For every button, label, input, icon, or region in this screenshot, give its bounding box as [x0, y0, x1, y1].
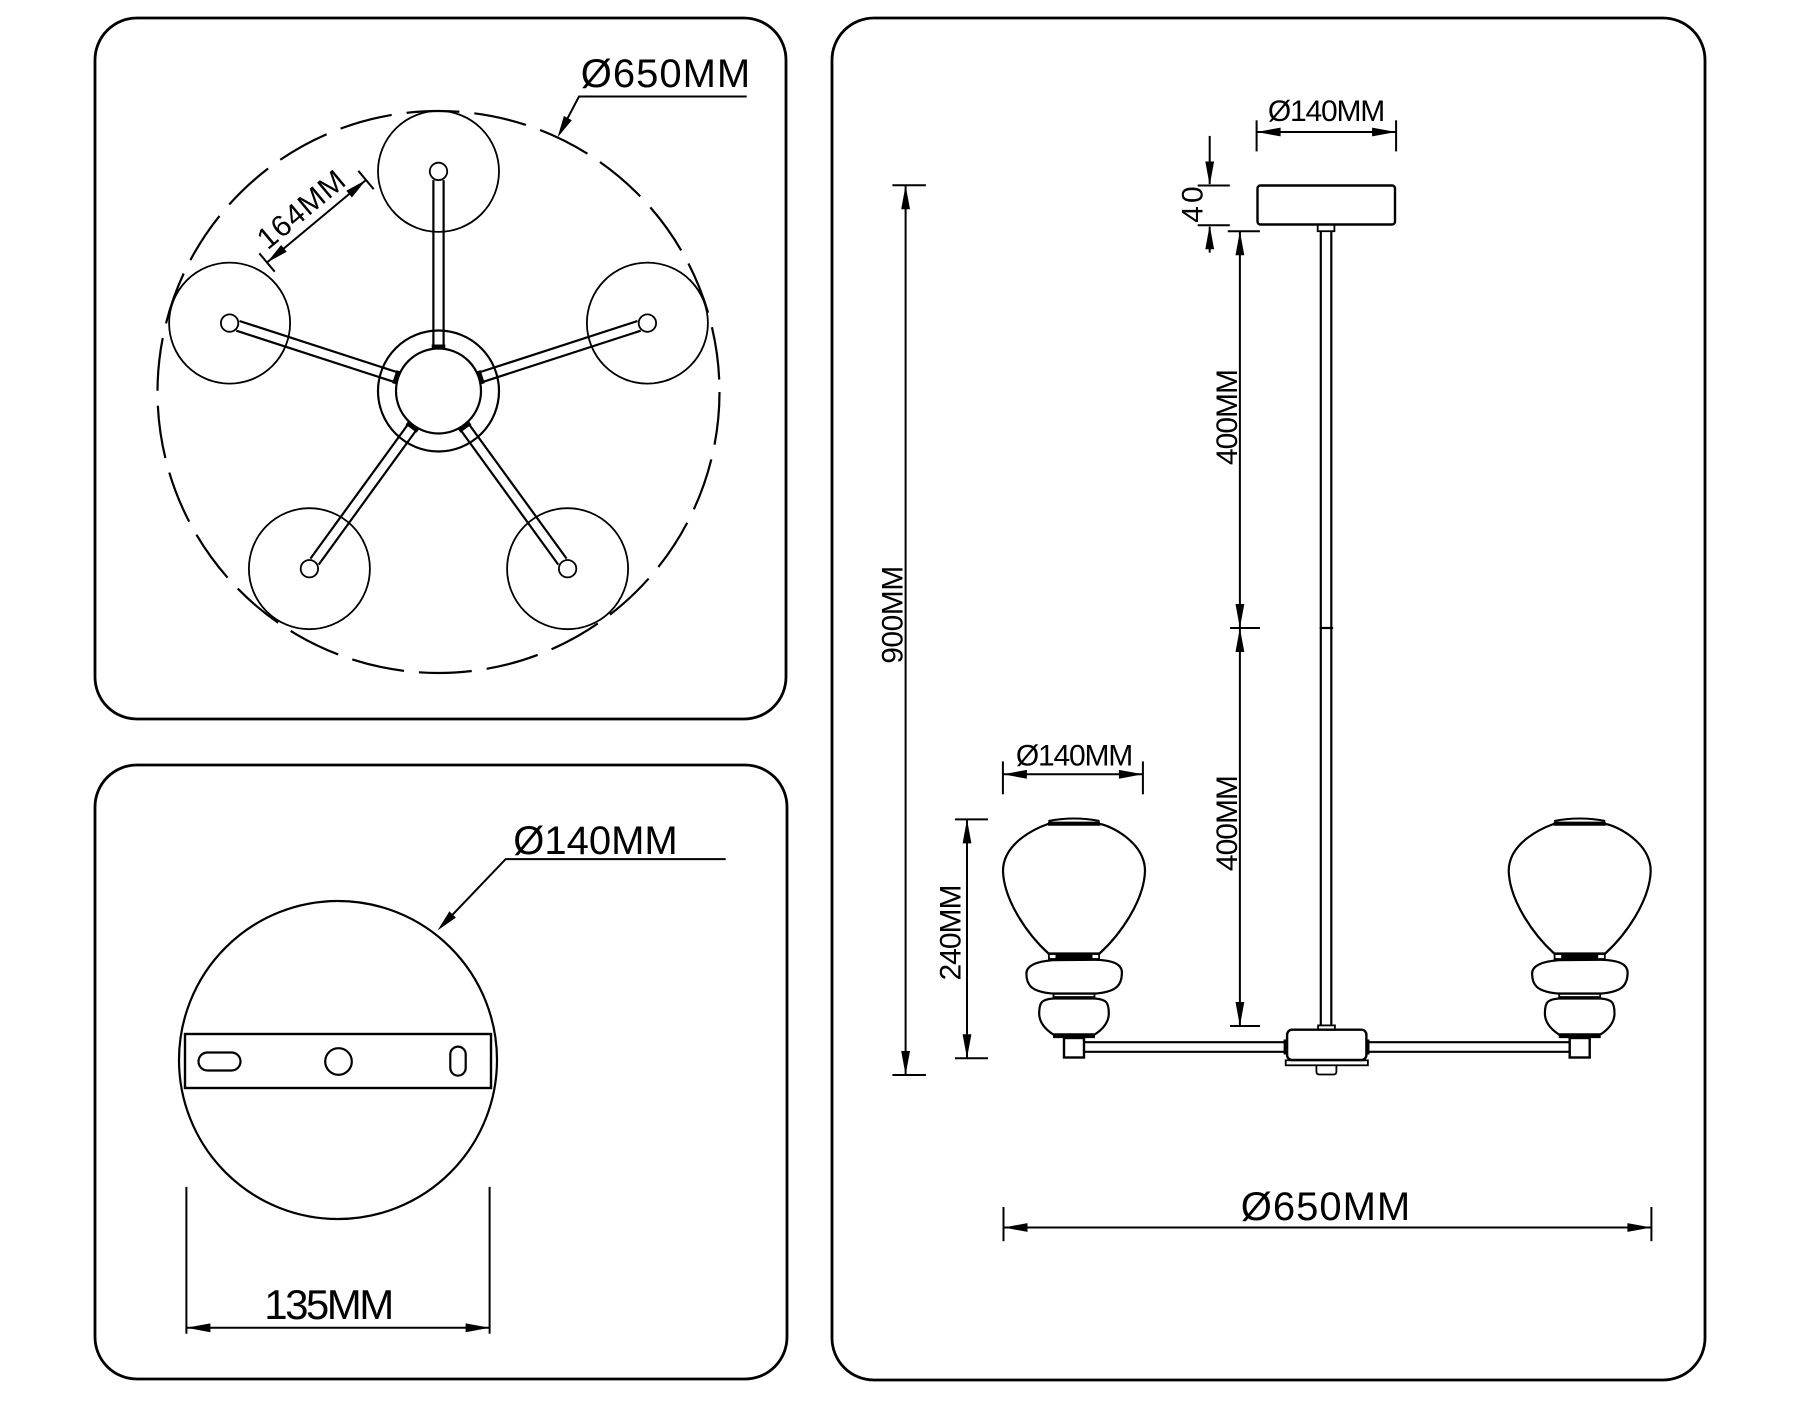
svg-text:40: 40 [1177, 183, 1210, 222]
svg-text:240MM: 240MM [934, 885, 967, 980]
svg-text:Ø650MM: Ø650MM [1241, 1185, 1412, 1229]
svg-text:Ø650MM: Ø650MM [581, 52, 752, 96]
svg-text:135MM: 135MM [264, 1281, 392, 1328]
svg-text:900MM: 900MM [877, 566, 910, 664]
svg-text:400MM: 400MM [1211, 370, 1244, 465]
svg-text:Ø140MM: Ø140MM [1016, 740, 1132, 773]
svg-text:Ø140MM: Ø140MM [1268, 95, 1384, 128]
svg-text:400MM: 400MM [1211, 776, 1244, 871]
svg-text:Ø140MM: Ø140MM [513, 819, 678, 863]
